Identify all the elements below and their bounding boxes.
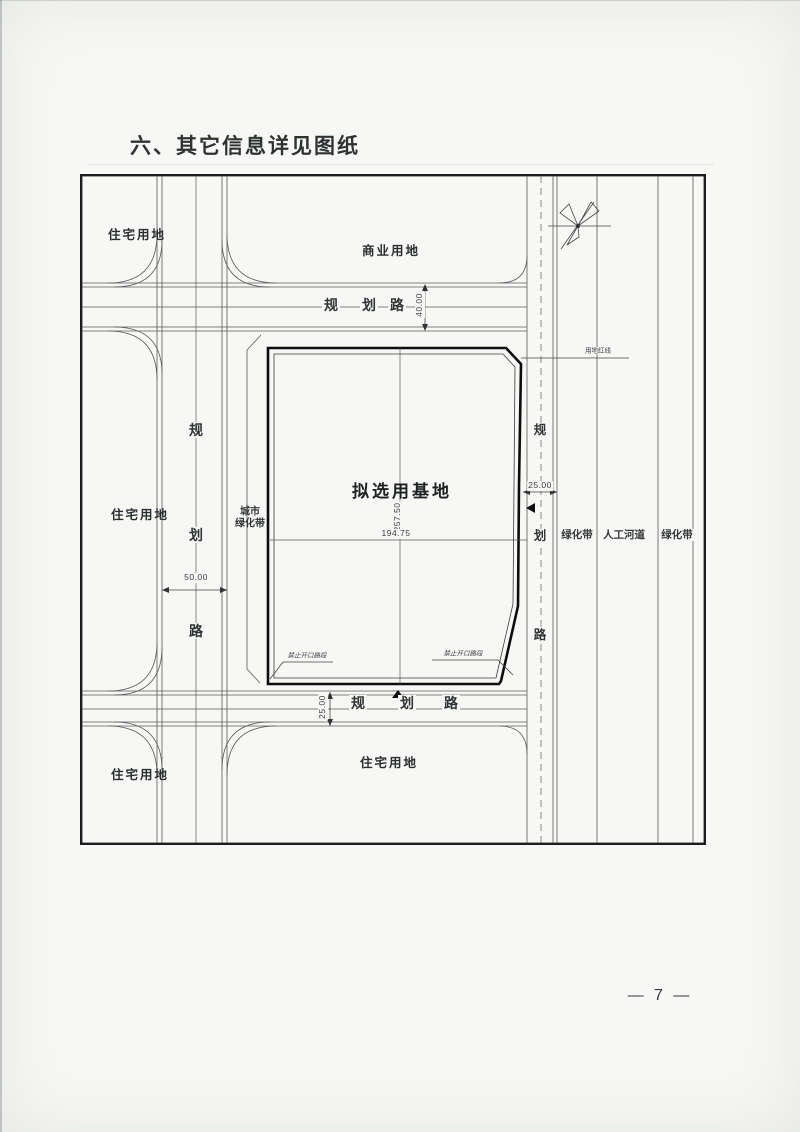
label-residential-bottom-left: 住宅用地 (111, 768, 169, 782)
road-label-right-char1: 规 (532, 423, 549, 437)
label-city-green-belt-line1: 城市 (240, 506, 260, 518)
dim-site-width: 194.75 (381, 529, 412, 539)
label-commercial-top: 商业用地 (362, 244, 420, 258)
label-residential-mid-left: 住宅用地 (111, 508, 169, 522)
road-label-left-char3: 路 (187, 623, 205, 639)
road-label-left-char1: 规 (187, 422, 205, 438)
road-label-top-char1: 规 (322, 297, 340, 313)
road-label-bottom-char2: 划 (398, 695, 416, 711)
site-plan-figure: 住宅用地 商业用地 住宅用地 住宅用地 住宅用地 拟选用基地 城市 绿化带 绿化… (80, 174, 706, 845)
note-no-opening-left: 禁止开口路段 (287, 652, 328, 659)
road-label-right-char2: 划 (532, 529, 549, 543)
dim-top-road-width: 40.00 (415, 292, 425, 318)
road-lines (82, 176, 693, 843)
dim-left-road-width: 50.00 (183, 573, 209, 583)
road-label-top-char3: 路 (388, 297, 406, 313)
label-city-green-belt-line2: 绿化带 (235, 518, 265, 530)
section-title: 六、其它信息详见图纸 (130, 130, 360, 160)
dim-right-road-width: 25.00 (527, 481, 553, 491)
road-label-top-char2: 划 (360, 297, 378, 313)
label-proposed-site: 拟选用基地 (352, 482, 452, 502)
label-residential-bottom-center: 住宅用地 (360, 756, 418, 770)
label-green-belt-right: 绿化带 (660, 529, 694, 541)
road-label-bottom-char3: 路 (442, 695, 460, 711)
title-underline (88, 164, 714, 165)
scan-edge-top (0, 0, 800, 1)
road-label-right-char3: 路 (532, 628, 549, 642)
dim-bottom-road-width: 25.00 (318, 694, 328, 720)
road-label-left-char2: 划 (187, 527, 205, 543)
road-label-bottom-char1: 规 (349, 695, 367, 711)
scan-edge-left (0, 0, 2, 1132)
page-number: — 7 — (628, 987, 693, 1005)
north-compass-icon (548, 202, 611, 249)
label-residential-top-left: 住宅用地 (108, 228, 166, 242)
note-no-opening-right: 禁止开口路段 (443, 650, 484, 657)
scanned-page: 六、其它信息详见图纸 (0, 0, 800, 1132)
label-river: 人工河道 (602, 529, 646, 541)
label-green-belt-left: 绿化带 (560, 529, 594, 541)
note-land-red-line: 用地红线 (584, 347, 612, 354)
